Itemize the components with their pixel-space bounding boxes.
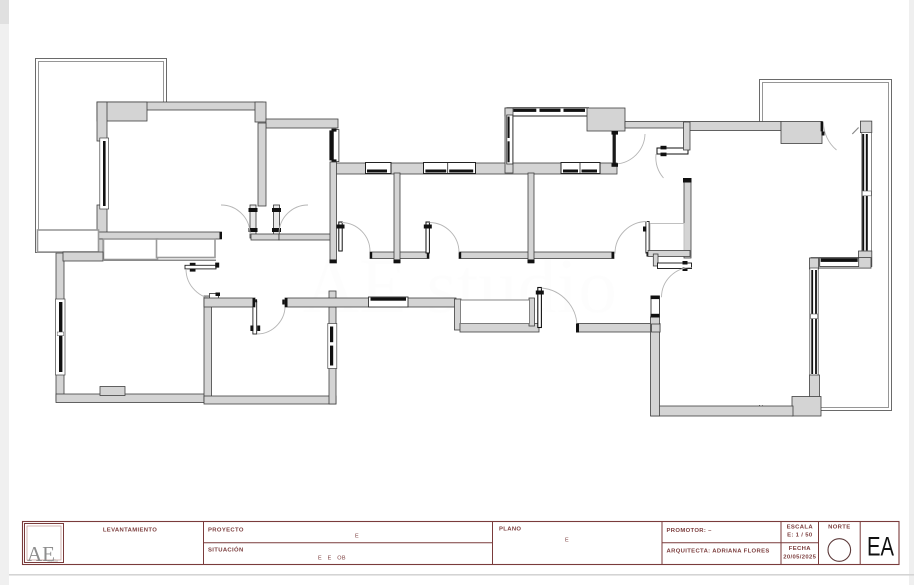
svg-text:PROYECTO: PROYECTO xyxy=(208,528,244,534)
svg-text:PLANO: PLANO xyxy=(499,527,521,533)
svg-text:FECHA: FECHA xyxy=(789,546,811,552)
svg-text:ESCALA: ESCALA xyxy=(787,525,814,531)
svg-text:20/05/2025: 20/05/2025 xyxy=(783,555,816,561)
svg-text:LEVANTAMIENTO: LEVANTAMIENTO xyxy=(103,528,157,534)
svg-text:ARQUITECTA: ADRIANA FLORES: ARQUITECTA: ADRIANA FLORES xyxy=(667,549,770,555)
svg-text:SITUACIÓN: SITUACIÓN xyxy=(208,546,244,554)
svg-text:PROMOTOR: –: PROMOTOR: – xyxy=(667,528,713,534)
svg-text:E: E xyxy=(565,538,569,544)
svg-text:EA: EA xyxy=(867,532,894,562)
svg-text:E: E xyxy=(355,534,359,540)
svg-text:studio: studio xyxy=(47,558,59,563)
svg-text:E E OB: E E OB xyxy=(318,556,346,562)
svg-text:E: 1 / 50: E: 1 / 50 xyxy=(787,533,813,539)
svg-text:NORTE: NORTE xyxy=(828,525,850,531)
